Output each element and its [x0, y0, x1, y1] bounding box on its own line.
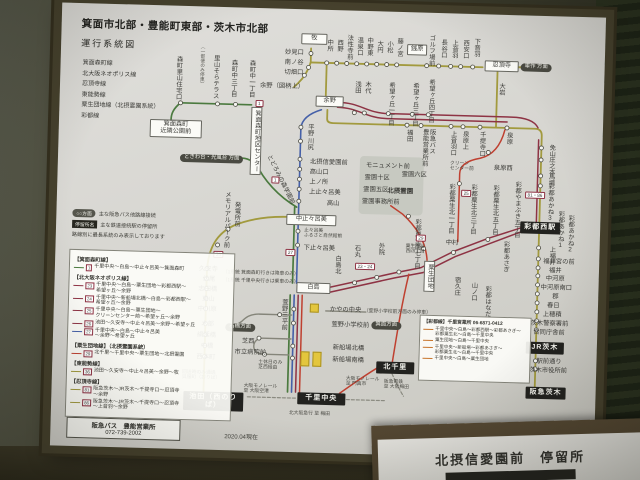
stop-box: 中止々呂美 — [286, 214, 336, 226]
stop-label: 中河原南口 — [540, 285, 572, 293]
stop-label: 法性寺前 — [345, 34, 353, 59]
stop-label: メモリアルパーク前 — [222, 191, 231, 248]
stop-label: 下止々呂美 — [303, 245, 335, 253]
stop-label: 彩都あさぎ — [501, 241, 509, 273]
stop-label: 高山 — [327, 201, 340, 208]
stop-label: 下音羽 — [472, 38, 479, 57]
stop-label: 希望ヶ丘一丁目 — [386, 82, 394, 126]
route-line-sample — [73, 310, 83, 311]
office-info-box: 阪急バス 豊能営業所 072-739-2002 — [66, 417, 181, 441]
stop-label: 山ノ口 — [469, 282, 476, 301]
stop-label: 彩都粟生北一丁目 — [446, 183, 454, 234]
stop-label: 長谷口 — [439, 39, 446, 58]
legend-text: 主な鉄道接続駅の停留所 — [100, 221, 157, 230]
stop-label: 彩都あかね2 — [565, 215, 573, 254]
stop-label: 彩都あかね1 — [556, 210, 564, 249]
stop-label: 茨木警察署前 — [530, 321, 568, 329]
stop-name-title: 北摂信愛園前 停留所 — [378, 444, 640, 470]
stop-label: 中所 — [325, 39, 332, 52]
stop-label: 市立病院前 — [234, 349, 266, 357]
stop-sign-bar — [446, 469, 576, 480]
route-number-chip: 86 — [82, 399, 91, 406]
route-number-chip: 23 — [85, 282, 94, 289]
stop-label: 藤ノ宮 — [395, 38, 402, 57]
map-note: 阪急電鉄 至 大阪梅田 — [384, 380, 410, 391]
route-line-sample — [70, 401, 80, 402]
route-description: 千里中央～白島～中止々呂美 ～余野～希望ヶ丘 — [95, 328, 160, 341]
stop-label: 発電所前 — [232, 201, 240, 226]
legend-row: 路線別に最長系統のみ表示しております — [72, 231, 165, 241]
stop-label: 霊園五区 — [363, 187, 388, 195]
stop-label: 高山口 — [310, 169, 329, 176]
stop-label: 彩都粟生北五丁目 — [490, 185, 498, 236]
stop-label: 希望ヶ丘三丁目 — [410, 82, 418, 126]
stop-box: 忍頂寺 — [485, 60, 519, 72]
stop-label: かやの中央 — [330, 307, 362, 315]
station-box: 彩都西駅 — [520, 221, 560, 234]
route-number-chip: 25 — [461, 190, 471, 197]
route-line-sample — [71, 353, 81, 354]
stop-label: 合同庁舎前 — [533, 330, 565, 338]
legend-row: 停留所名主な鉄道接続駅の停留所 — [72, 220, 165, 231]
stop-label: 大岩 — [497, 83, 504, 96]
stop-box: 箕面森町 近隣公園前 — [150, 119, 202, 138]
map-note: 止々呂美 ふるさと自然館前 — [304, 228, 343, 240]
route-number-chip: 29 — [416, 234, 426, 241]
stop-label: モニュメント前 — [366, 163, 410, 171]
legend-tag: 停留所名 — [72, 220, 97, 229]
map-note: 北大阪急行 至 梅田 — [289, 411, 330, 417]
stop-label: 上音羽 — [450, 39, 457, 58]
stop-label: 浅田 — [353, 81, 360, 94]
stop-label: 森町里山住宅口 — [174, 56, 182, 100]
route-number-chip: 25 — [85, 307, 94, 314]
route-number-chip: 81 — [82, 386, 91, 393]
stop-box: 銭原 — [407, 44, 427, 55]
route-description: 池田～久安寺～中止々呂美～余野～牧 — [94, 369, 179, 377]
stop-label: 里山そらテラス — [211, 55, 219, 99]
stop-label: 中村 — [446, 240, 459, 247]
route-line-sample — [73, 297, 83, 298]
station-box: 北千里 — [376, 361, 414, 374]
stop-label: 新船場北橋 — [333, 345, 365, 353]
stop-label: 駅前通り — [536, 359, 561, 367]
stop-label: ゴルフ場前 — [427, 35, 435, 67]
stop-box: 白島 — [296, 282, 330, 294]
stop-label: 温泉口 — [355, 37, 362, 56]
route-number-chip: 27 — [84, 328, 93, 335]
stop-label: 春日 — [547, 303, 560, 310]
stop-label: 茨木市役所前 — [529, 368, 567, 376]
route-number-chip: 24 — [85, 295, 94, 302]
route-line-sample — [422, 358, 432, 359]
route-number-chip: 1 — [271, 176, 279, 183]
route-number-chip: 26 — [84, 320, 93, 327]
stop-label: 郡 — [552, 294, 558, 301]
stop-label: 西安口 — [461, 40, 468, 59]
stop-label: 新船場南橋 — [332, 357, 364, 365]
transfer-marker — [310, 304, 319, 313]
route-description: 千里中央～新船場～彩都あさぎ～ 彩都粟生北～白島～千里中央 — [435, 344, 503, 356]
route-description: 北千里～千里中央～粟生団地～北摂霊園 — [94, 351, 184, 359]
photo-scene: 箕面市北部・豊能町東部・茨木市北部 運行系統図 箕面森町線北大阪ネオポリス線忍頂… — [0, 0, 640, 480]
stop-box: 牧 — [301, 33, 327, 45]
stop-label: 免山 — [547, 144, 554, 157]
stop-label: 余野（図柄上） — [260, 83, 304, 91]
stop-label: 希望ヶ丘四丁目 — [426, 79, 434, 123]
route-number-chip: 81・86 — [525, 191, 545, 199]
legend-text: 路線別に最長系統のみ表示しております — [72, 231, 165, 241]
stop-name-sign: 北摂信愛園前 停留所 — [371, 418, 640, 480]
route-number-chip: 23・24 — [355, 263, 375, 271]
stop-label: 上ノ所 — [309, 179, 328, 186]
route-line-sample — [423, 329, 433, 330]
stop-label: 芝西 — [242, 339, 255, 346]
stop-label: 宿久庄 — [452, 277, 459, 296]
legend-routes: 【箕面森町線】1千里中央～白島～中止々呂美～箕面森町【北大阪ネオポリス線】23千… — [65, 249, 236, 422]
route-line-sample — [74, 267, 84, 268]
direction-pill: 車作 方面 — [521, 63, 552, 72]
route-number-chip: 1 — [86, 264, 93, 271]
stop-label: 北摂霊園 — [387, 188, 413, 196]
stop-label: 千提寺口 — [477, 131, 485, 156]
stop-label: 森町中一丁目 — [247, 60, 255, 98]
stop-label: 霊園六区 — [401, 172, 426, 180]
stop-box: 粟生団地 — [423, 261, 435, 292]
route-description: 阪急茨木～JR茨木～千提寺口～忍頂寺 ～上音羽～余野 — [93, 399, 179, 413]
legend-tag: ○○方面 — [72, 209, 96, 218]
stop-label: 白島北 — [333, 255, 340, 274]
stop-label: 大円 — [375, 40, 382, 53]
stop-label: 彩都粟生南七丁目 — [412, 218, 420, 269]
map-note: 大阪モノレール 至 門真市 — [346, 377, 380, 388]
route-number-chip: 27 — [285, 249, 295, 256]
route-line-sample — [423, 346, 433, 347]
route-map-poster: 箕面市北部・豊能町東部・茨木市北部 運行系統図 箕面森町線北大阪ネオポリス線忍頂… — [50, 2, 606, 460]
map-note: 土休日のみ 芝西経由 — [258, 360, 282, 371]
station-box: 阪急茨木 — [525, 387, 565, 400]
stop-label: 切畑口 — [284, 70, 303, 77]
transfer-marker — [312, 352, 321, 367]
stop-label: 阪急バス 豊能営業所前 — [420, 129, 435, 169]
route-line-sample — [423, 340, 433, 341]
direction-pill: 箕面方面 — [371, 321, 401, 330]
stop-label: 森町中三丁目 — [229, 59, 237, 97]
legend-text: 主な阪急バス他路線接続 — [99, 210, 156, 219]
stop-label: 彩都やまぶき五丁目 — [512, 181, 521, 238]
stop-label: 西野 — [335, 39, 342, 52]
route-number-chip: 36 — [83, 368, 92, 375]
legend-symbols: ○○方面主な阪急バス他路線接続停留所名主な鉄道接続駅の停留所路線別に最長系統のみ… — [72, 209, 166, 244]
stop-label: 平野 — [306, 123, 313, 136]
stop-label: 上音羽口 — [448, 130, 456, 155]
stop-box: 箕面森町地区センター — [250, 107, 263, 175]
stop-label: 南ノ谷 — [285, 60, 304, 67]
stop-label: とどろみの森学園前 — [265, 154, 295, 205]
stop-label: 木代 — [363, 81, 370, 94]
station-box: JR茨木 — [526, 342, 564, 355]
stop-box: 余野 — [315, 96, 343, 108]
stop-label: 泉原 — [504, 132, 511, 145]
stop-label: 石丸 — [352, 245, 359, 258]
route-line-sample — [71, 371, 81, 372]
stop-label: 中河原 — [546, 276, 565, 283]
legend-row: ○○方面主な阪急バス他路線接続 — [72, 209, 165, 220]
stop-label: 彩都はなだ — [483, 285, 491, 317]
stop-label: 上穂積 — [543, 312, 562, 319]
date-note: 2020.04現在 — [224, 431, 258, 441]
stop-label: 泉原上 — [460, 131, 467, 150]
route-description: 千里中央～白島～粟生団地 — [434, 355, 488, 362]
route-number-chip: 29 — [83, 350, 92, 357]
stop-label: 小松 — [385, 41, 392, 54]
map-note: （一部便のみ停車） — [200, 44, 206, 86]
route-line-sample — [70, 389, 80, 390]
legend-saito-line: 【彩都線】千里営業所 06-6871-0412 千里中央～白島～彩都西駅～彩都あ… — [418, 315, 532, 384]
stop-label: 北摂信愛園前 — [310, 159, 348, 167]
stop-name-paper: 北摂信愛園前 停留所 — [378, 432, 640, 480]
stop-label: 福田 — [405, 129, 412, 142]
stop-label: 萱野小学校前 — [331, 322, 369, 330]
stop-label: 泉原西 — [494, 166, 513, 173]
stop-label: 外院 — [376, 242, 383, 255]
route-line-sample — [72, 322, 82, 323]
stop-label: 中野東 — [365, 37, 372, 56]
map-note: クリーン センター前 — [450, 161, 474, 172]
stop-label: 萱野三平前 — [279, 299, 287, 331]
transfer-marker — [300, 351, 309, 366]
route-line-sample — [72, 330, 82, 331]
stop-label: 霊園十区 — [364, 175, 389, 183]
stop-label: 彩都あかね3 — [545, 183, 553, 222]
stop-label: 川尻 — [305, 137, 312, 150]
direction-pill: ときわ台・光風台 方面 — [180, 154, 244, 164]
route-line-sample — [73, 285, 83, 286]
stop-label: 上止々呂美 — [309, 189, 341, 197]
route-number-chip: 1 — [255, 100, 263, 107]
stop-label: 霊園事務所前 — [362, 199, 400, 207]
route-description: 千里中央～白島～中止々呂美～箕面森町 — [94, 264, 184, 272]
station-box: 千里中央 — [297, 392, 345, 405]
stop-label: 妙見口 — [285, 50, 304, 57]
stop-label: 福井宮の前 — [543, 259, 575, 267]
map-note: 大阪モノレール 至 大阪空港 — [243, 384, 277, 395]
